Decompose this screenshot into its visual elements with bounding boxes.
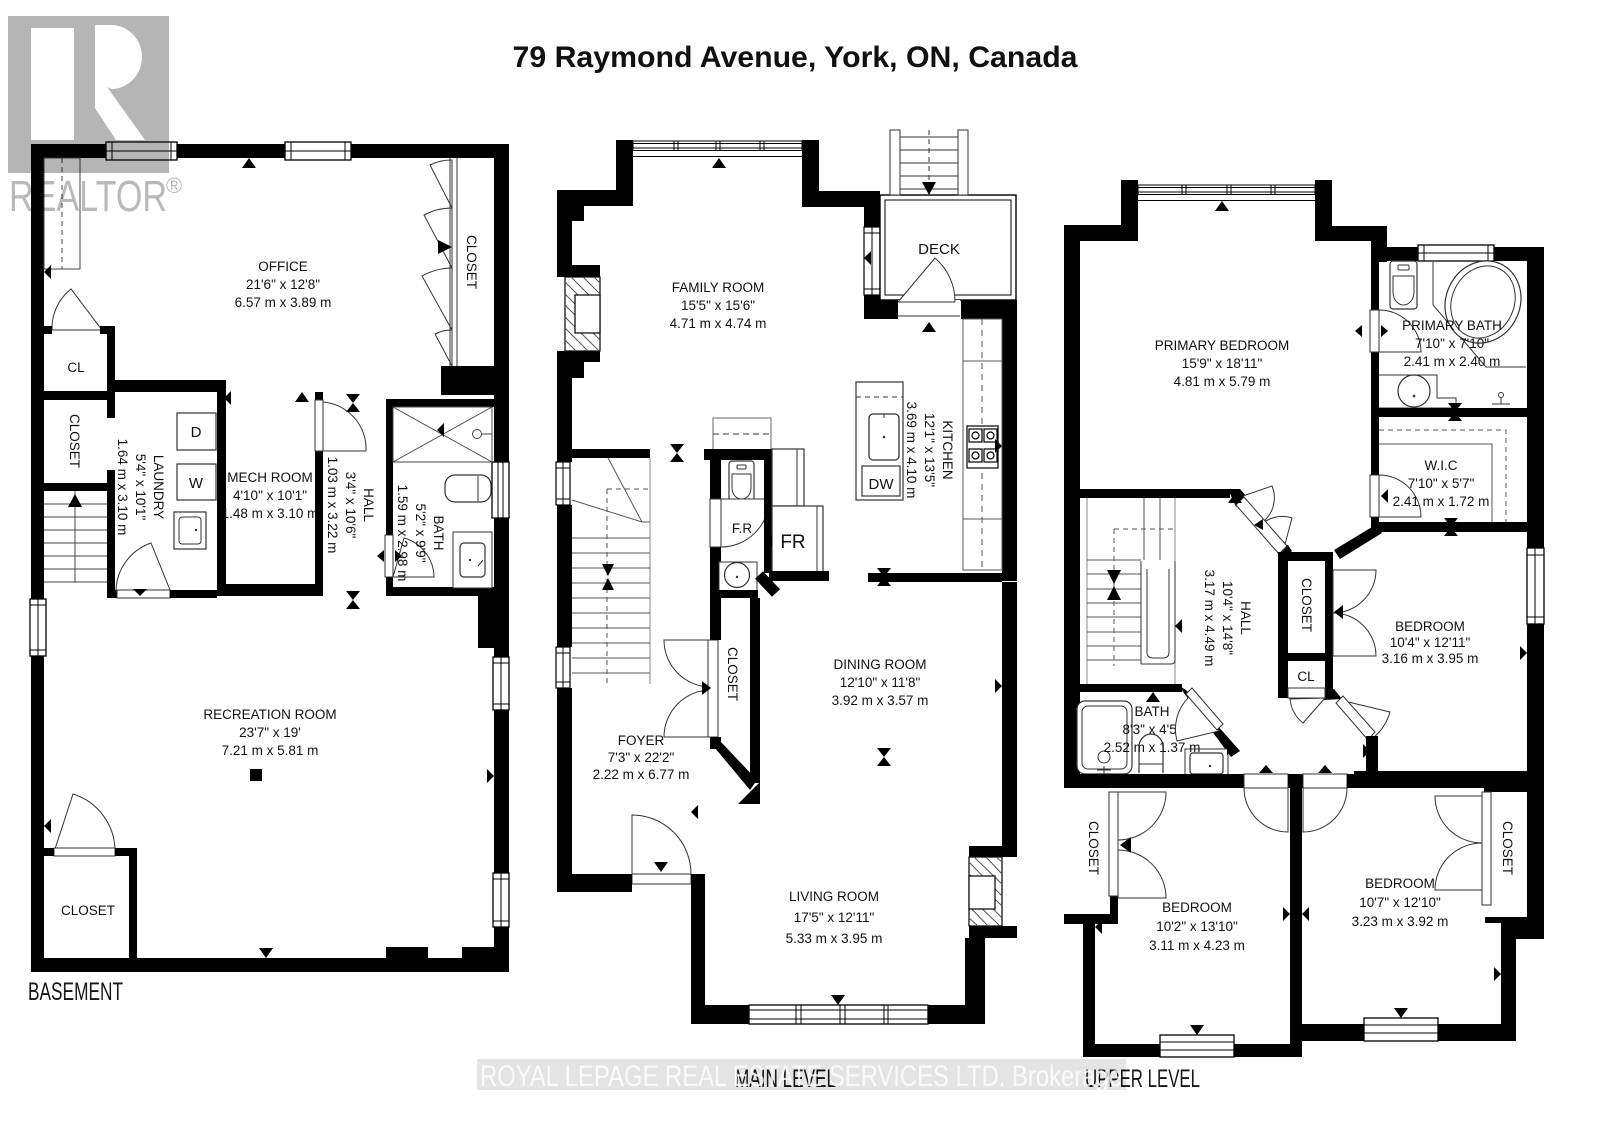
svg-text:HALL: HALL [361, 488, 376, 522]
svg-text:5'2" x 9'9": 5'2" x 9'9" [413, 503, 428, 562]
svg-text:CLOSET: CLOSET [1500, 821, 1515, 875]
svg-text:D: D [191, 424, 202, 441]
svg-text:ROYAL LEPAGE REAL ESTATE SERVI: ROYAL LEPAGE REAL ESTATE SERVICES LTD. B… [480, 1060, 1122, 1093]
svg-text:CLOSET: CLOSET [61, 903, 115, 918]
svg-text:CLOSET: CLOSET [725, 647, 740, 701]
svg-text:RECREATION ROOM: RECREATION ROOM [203, 707, 336, 722]
svg-text:7.21 m x 5.81 m: 7.21 m x 5.81 m [222, 743, 319, 758]
svg-text:F.R: F.R [732, 521, 753, 536]
svg-text:1.59 m x 2.98 m: 1.59 m x 2.98 m [395, 485, 410, 582]
svg-text:6.57 m x 3.89 m: 6.57 m x 3.89 m [235, 295, 332, 310]
svg-text:4.71 m x 4.74 m: 4.71 m x 4.74 m [670, 316, 767, 331]
svg-text:3.11 m x 4.23 m: 3.11 m x 4.23 m [1149, 938, 1245, 953]
svg-text:10'2" x 13'10": 10'2" x 13'10" [1156, 919, 1238, 934]
svg-text:3.23 m x 3.92 m: 3.23 m x 3.92 m [1352, 914, 1449, 929]
svg-text:12'10" x 11'8": 12'10" x 11'8" [840, 675, 921, 690]
svg-text:REALTOR: REALTOR [9, 172, 167, 221]
svg-text:1.03 m x 3.22 m: 1.03 m x 3.22 m [325, 457, 340, 554]
svg-text:17'5" x 12'11": 17'5" x 12'11" [794, 910, 875, 925]
svg-text:CL: CL [67, 360, 85, 375]
svg-text:4.81 m x 5.79 m: 4.81 m x 5.79 m [1174, 374, 1271, 389]
svg-text:3.92 m x 3.57 m: 3.92 m x 3.57 m [832, 693, 929, 708]
svg-text:DW: DW [869, 476, 895, 493]
svg-text:2.22 m x 6.77 m: 2.22 m x 6.77 m [593, 767, 690, 782]
svg-text:5'4" x 10'1": 5'4" x 10'1" [133, 454, 148, 521]
svg-text:CL: CL [1297, 669, 1315, 684]
svg-text:3'4" x 10'6": 3'4" x 10'6" [343, 472, 358, 539]
svg-text:BEDROOM: BEDROOM [1365, 876, 1435, 891]
svg-text:BATH: BATH [431, 515, 446, 550]
svg-text:1.64 m x 3.10 m: 1.64 m x 3.10 m [115, 439, 130, 536]
svg-text:8'3" x 4'5": 8'3" x 4'5" [1122, 722, 1181, 737]
svg-text:CLOSET: CLOSET [464, 235, 479, 289]
svg-text:DINING ROOM: DINING ROOM [834, 657, 927, 672]
svg-text:W.I.C: W.I.C [1425, 458, 1458, 473]
svg-text:DECK: DECK [918, 241, 960, 258]
svg-text:2.41 m x 1.72 m: 2.41 m x 1.72 m [1393, 494, 1490, 509]
svg-text:PRIMARY BEDROOM: PRIMARY BEDROOM [1155, 338, 1290, 353]
svg-text:LIVING ROOM: LIVING ROOM [789, 889, 879, 904]
svg-text:BATH: BATH [1134, 704, 1169, 719]
svg-text:CLOSET: CLOSET [1086, 821, 1101, 875]
svg-text:3.17 m x 4.49 m: 3.17 m x 4.49 m [1202, 570, 1217, 667]
svg-text:PRIMARY BATH: PRIMARY BATH [1402, 318, 1502, 333]
svg-text:2.52 m x 1.37 m: 2.52 m x 1.37 m [1104, 740, 1201, 755]
svg-text:10'7" x 12'10": 10'7" x 12'10" [1359, 895, 1441, 910]
svg-text:5.33 m x 3.95 m: 5.33 m x 3.95 m [786, 931, 883, 946]
svg-text:79 Raymond Avenue, York, ON, C: 79 Raymond Avenue, York, ON, Canada [513, 41, 1078, 74]
svg-text:2.41 m x 2.40 m: 2.41 m x 2.40 m [1404, 354, 1501, 369]
svg-text:3.16 m x 3.95 m: 3.16 m x 3.95 m [1382, 651, 1479, 666]
svg-text:7'3" x 22'2": 7'3" x 22'2" [608, 750, 675, 765]
svg-text:15'9" x 18'11": 15'9" x 18'11" [1182, 356, 1263, 371]
svg-text:LAUNDRY: LAUNDRY [151, 455, 166, 519]
svg-text:7'10" x 7'10": 7'10" x 7'10" [1415, 336, 1489, 351]
svg-text:KITCHEN: KITCHEN [940, 420, 955, 479]
svg-text:1.48 m x 3.10 m: 1.48 m x 3.10 m [222, 506, 319, 521]
svg-text:®: ® [166, 173, 182, 198]
svg-text:15'5" x 15'6": 15'5" x 15'6" [681, 298, 755, 313]
svg-text:W: W [189, 475, 204, 492]
svg-text:10'4" x 12'11": 10'4" x 12'11" [1390, 635, 1471, 650]
svg-text:HALL: HALL [1238, 601, 1253, 635]
svg-text:10'4" x 14'8": 10'4" x 14'8" [1220, 581, 1235, 655]
svg-text:BEDROOM: BEDROOM [1395, 619, 1465, 634]
svg-text:FAMILY ROOM: FAMILY ROOM [672, 280, 765, 295]
svg-text:CLOSET: CLOSET [67, 414, 82, 468]
svg-text:CLOSET: CLOSET [1299, 578, 1314, 632]
svg-text:12'1" x 13'5": 12'1" x 13'5" [922, 413, 937, 487]
svg-text:21'6" x 12'8": 21'6" x 12'8" [246, 277, 320, 292]
svg-text:BEDROOM: BEDROOM [1162, 900, 1232, 915]
svg-text:4'10" x 10'1": 4'10" x 10'1" [233, 488, 307, 503]
svg-text:BASEMENT: BASEMENT [28, 978, 123, 1006]
svg-text:MECH ROOM: MECH ROOM [227, 470, 313, 485]
svg-text:23'7" x 19': 23'7" x 19' [239, 725, 301, 740]
svg-text:FR: FR [780, 532, 805, 553]
svg-text:FOYER: FOYER [618, 733, 665, 748]
svg-text:3.69 m x 4.10 m: 3.69 m x 4.10 m [904, 402, 919, 499]
svg-text:7'10" x 5'7": 7'10" x 5'7" [1408, 476, 1475, 491]
svg-text:OFFICE: OFFICE [258, 259, 308, 274]
